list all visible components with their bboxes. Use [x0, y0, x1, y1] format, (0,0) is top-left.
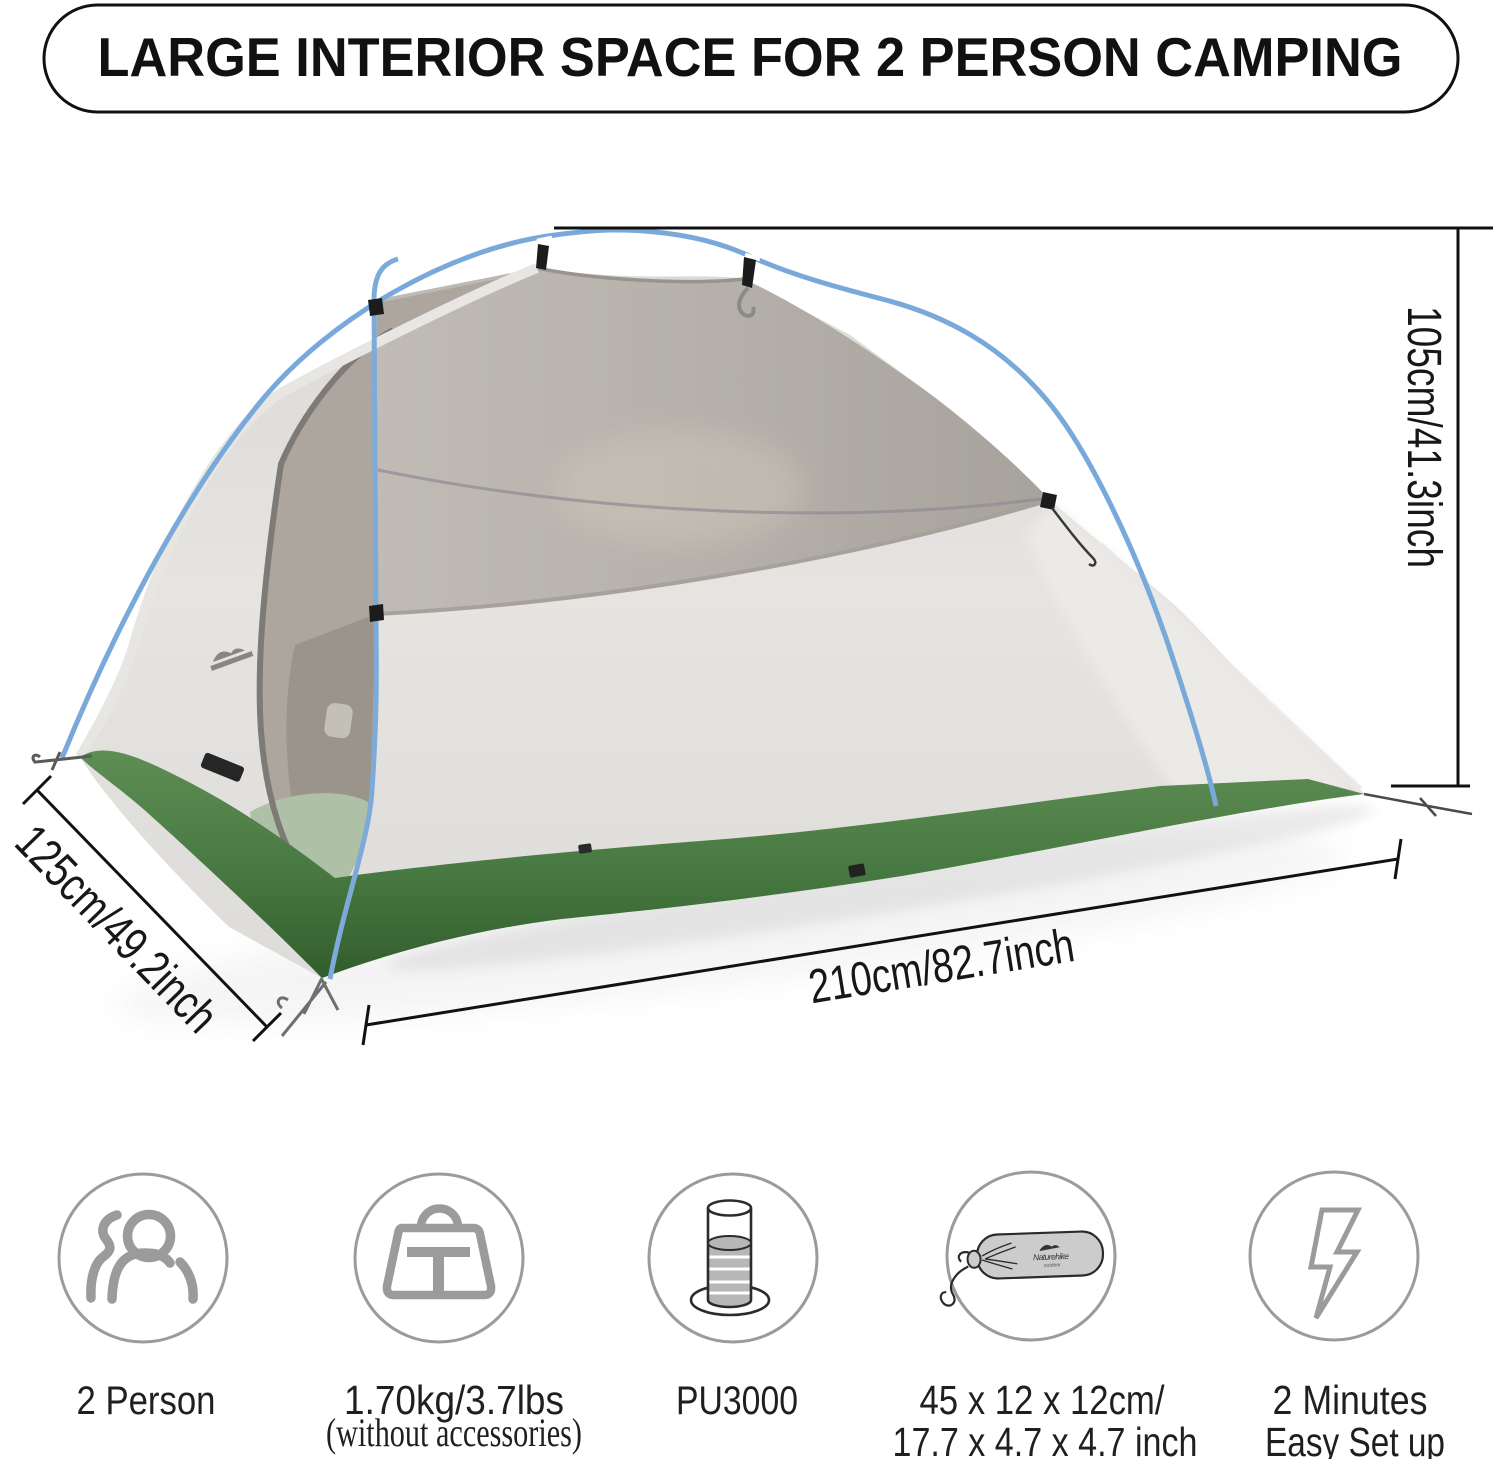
svg-text:45 x 12 x 12cm/: 45 x 12 x 12cm/: [920, 1377, 1166, 1423]
svg-text:(without accessories): (without accessories): [326, 1410, 582, 1455]
svg-text:2 Person: 2 Person: [77, 1379, 216, 1423]
svg-text:Naturehike: Naturehike: [1033, 1251, 1070, 1262]
svg-text:105cm/41.3inch: 105cm/41.3inch: [1397, 306, 1450, 568]
svg-text:Easy Set up: Easy Set up: [1265, 1419, 1445, 1459]
svg-text:2 Minutes: 2 Minutes: [1273, 1377, 1428, 1423]
svg-text:LARGE INTERIOR SPACE FOR 2 PER: LARGE INTERIOR SPACE FOR 2 PERSON CAMPIN…: [98, 26, 1403, 88]
svg-text:outdoor: outdoor: [1044, 1262, 1061, 1269]
svg-text:PU3000: PU3000: [676, 1379, 798, 1423]
svg-text:17.7 x 4.7 x 4.7 inch: 17.7 x 4.7 x 4.7 inch: [893, 1419, 1198, 1459]
